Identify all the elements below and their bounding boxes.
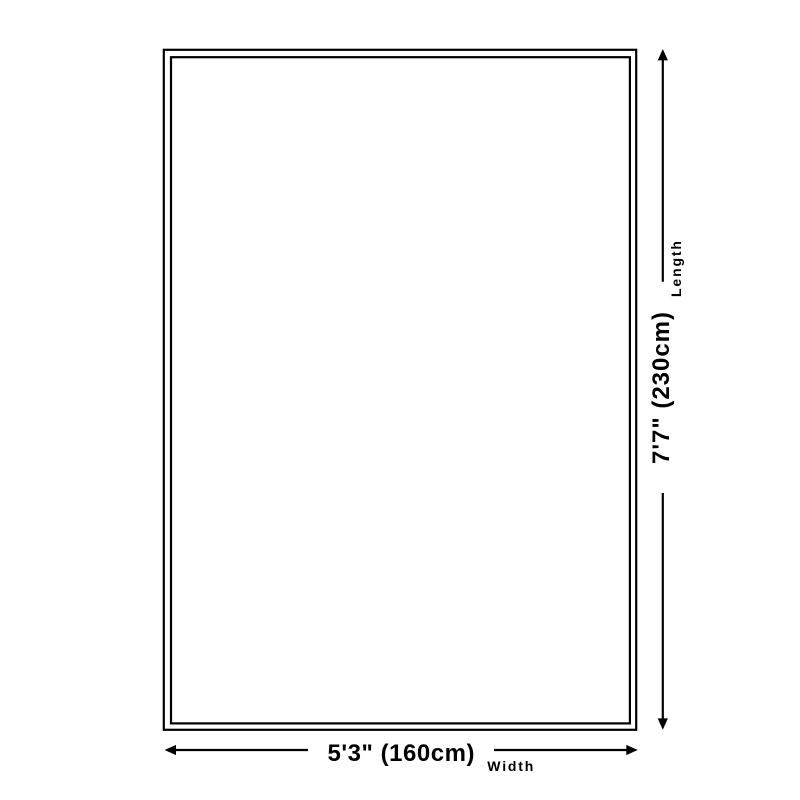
svg-text:Length: Length (668, 241, 684, 297)
svg-text:Width: Width (487, 758, 533, 774)
svg-text:5'3" (160cm): 5'3" (160cm) (328, 740, 475, 767)
svg-text:7'7" (230cm): 7'7" (230cm) (648, 312, 675, 464)
